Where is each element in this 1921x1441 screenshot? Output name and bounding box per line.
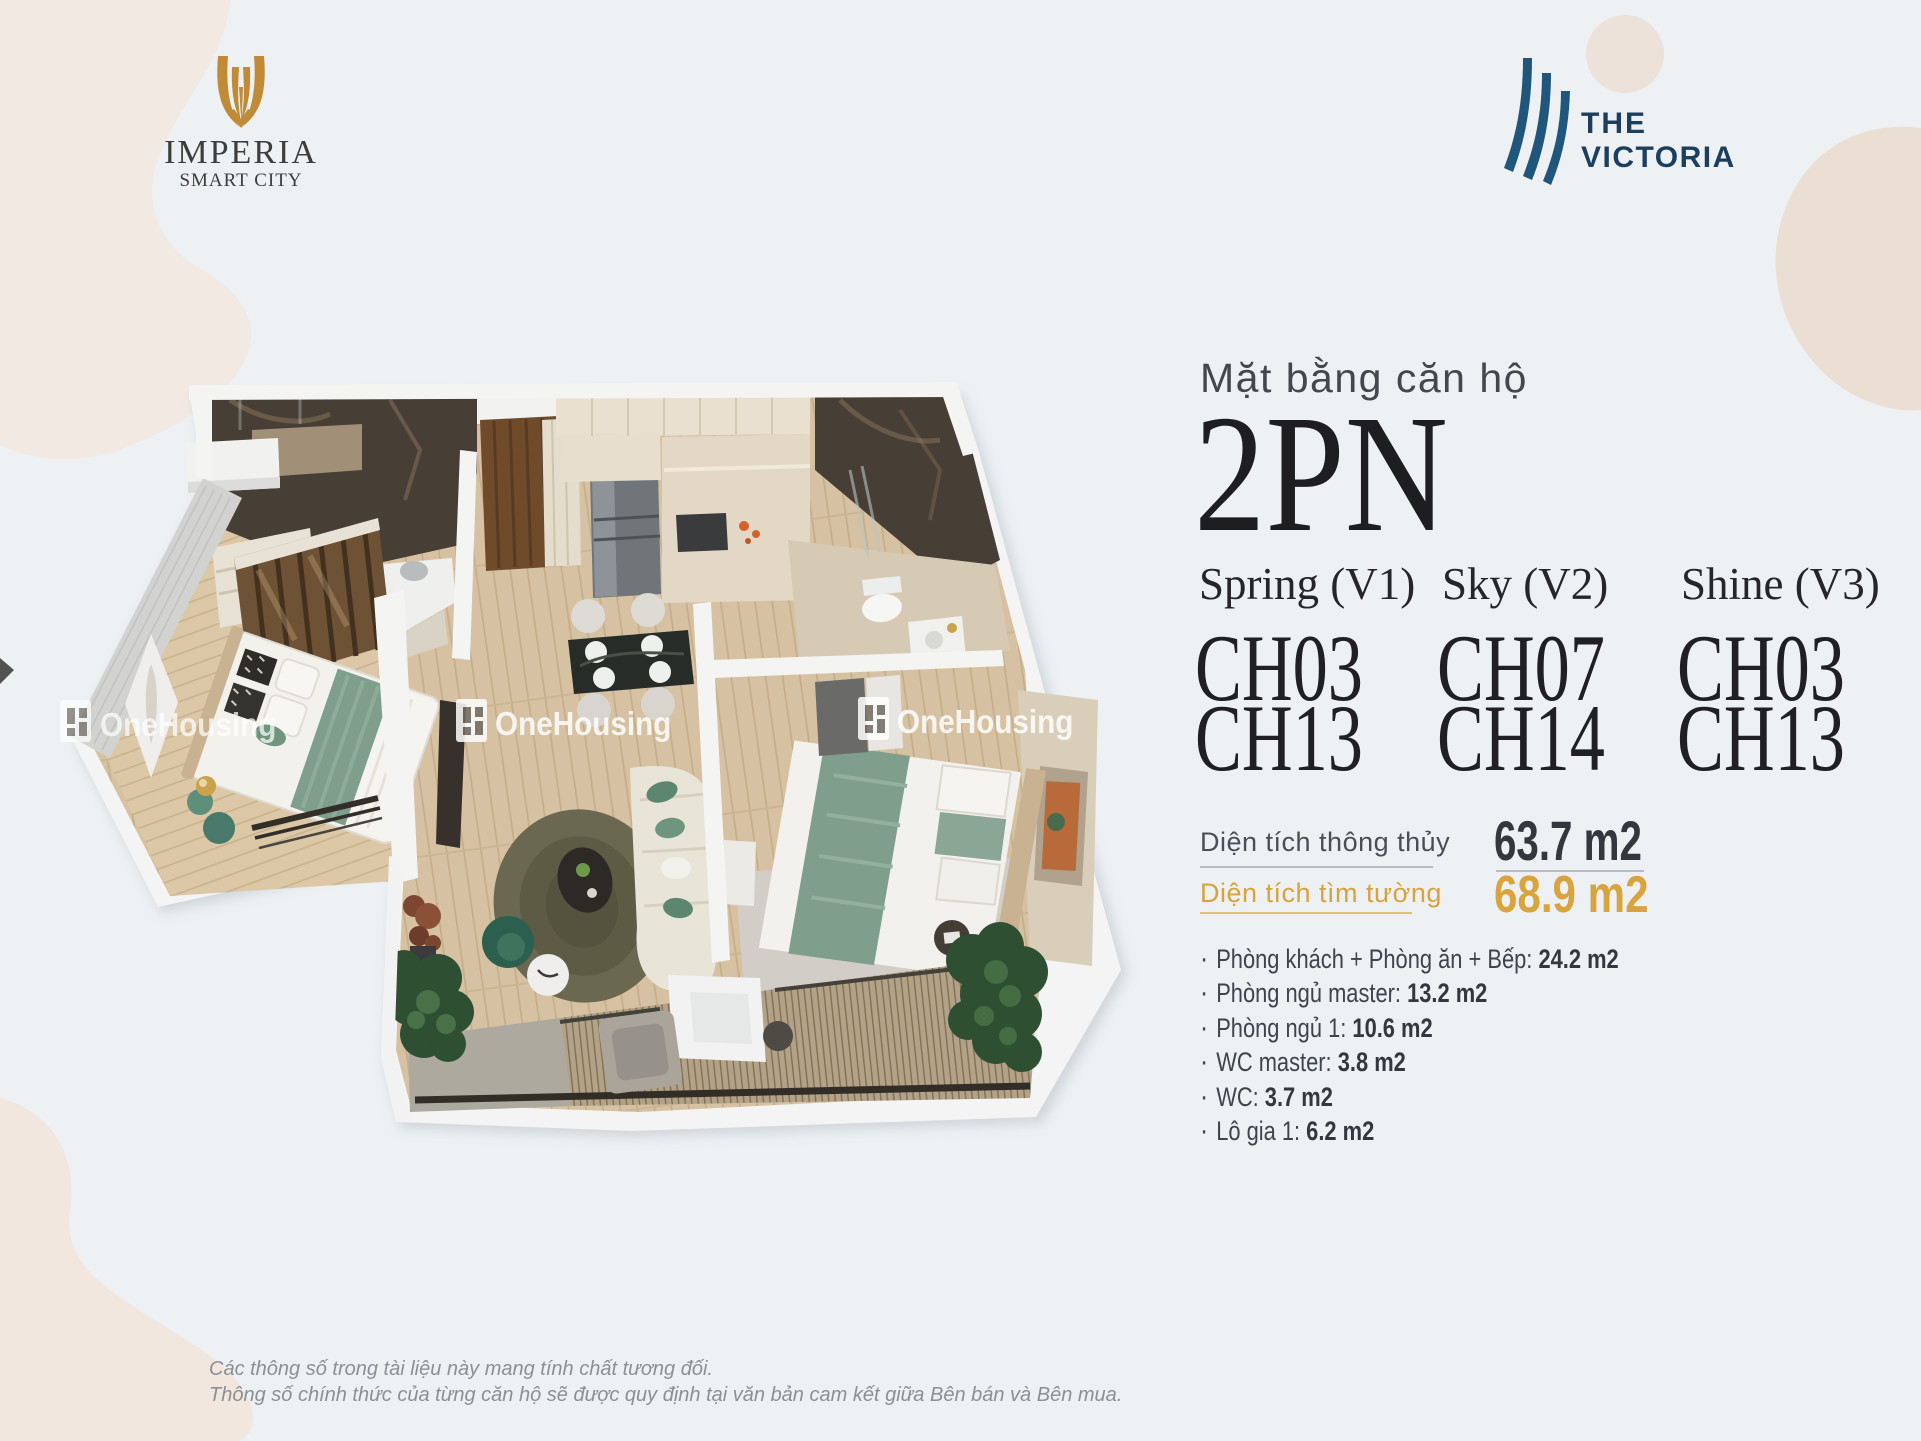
svg-text:OneHousing: OneHousing xyxy=(897,704,1073,741)
svg-text:SMART CITY: SMART CITY xyxy=(179,170,302,191)
svg-text:OneHousing: OneHousing xyxy=(495,706,671,743)
svg-text:VICTORIA: VICTORIA xyxy=(1581,141,1736,174)
svg-text:OneHousing: OneHousing xyxy=(100,707,276,744)
svg-text:IMPERIA: IMPERIA xyxy=(164,134,318,171)
svg-text:THE: THE xyxy=(1581,107,1647,140)
